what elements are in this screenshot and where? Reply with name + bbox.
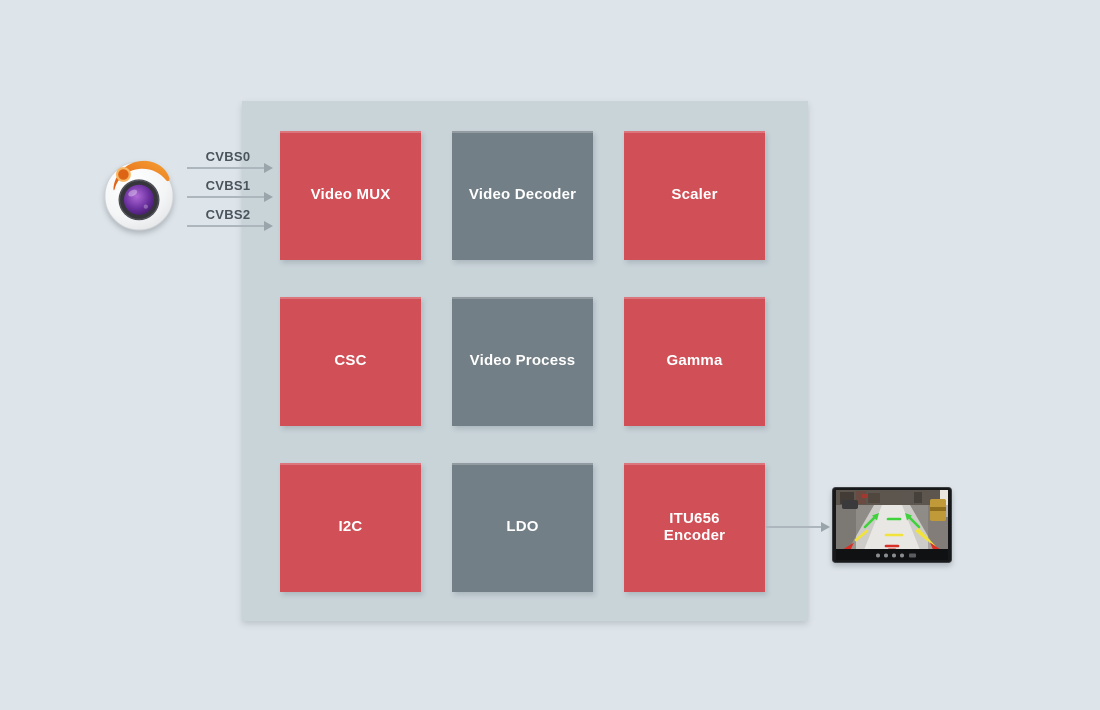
input-arrow-cvbs2: [187, 225, 265, 227]
block-ldo: LDO: [452, 463, 593, 592]
block-itu656-encoder: ITU656 Encoder: [624, 463, 765, 592]
block-csc: CSC: [280, 297, 421, 426]
input-label-cvbs2: CVBS2: [186, 207, 270, 222]
monitor-screen: [836, 490, 948, 553]
block-gamma: Gamma: [624, 297, 765, 426]
block-label: CSC: [334, 353, 366, 370]
block-label: Video Decoder: [469, 187, 576, 204]
input-label-cvbs0: CVBS0: [186, 149, 270, 164]
output-arrow: [766, 526, 822, 528]
monitor-bottom-bezel: [836, 549, 948, 560]
lens-glint-small: [144, 205, 148, 209]
block-label: I2C: [339, 519, 363, 536]
block-label: Video MUX: [311, 187, 391, 204]
input-label-cvbs1: CVBS1: [186, 178, 270, 193]
block-label: Video Process: [470, 353, 576, 370]
rearview-monitor-icon: [832, 487, 952, 563]
camera-swoosh-dot: [117, 168, 130, 181]
block-label: Gamma: [666, 353, 722, 370]
block-video-decoder: Video Decoder: [452, 131, 593, 260]
block-label: Scaler: [671, 187, 717, 204]
camera-lens-icon: [102, 155, 176, 233]
block-scaler: Scaler: [624, 131, 765, 260]
block-video-mux: Video MUX: [280, 131, 421, 260]
block-video-process: Video Process: [452, 297, 593, 426]
block-label: ITU656 Encoder: [651, 511, 739, 544]
block-label: LDO: [506, 519, 538, 536]
block-i2c: I2C: [280, 463, 421, 592]
lens-glass: [124, 185, 154, 215]
input-arrow-cvbs1: [187, 196, 265, 198]
diagram-canvas: CVBS0 CVBS1 CVBS2 Video MUX Video Decode…: [0, 0, 1100, 710]
input-arrow-cvbs0: [187, 167, 265, 169]
